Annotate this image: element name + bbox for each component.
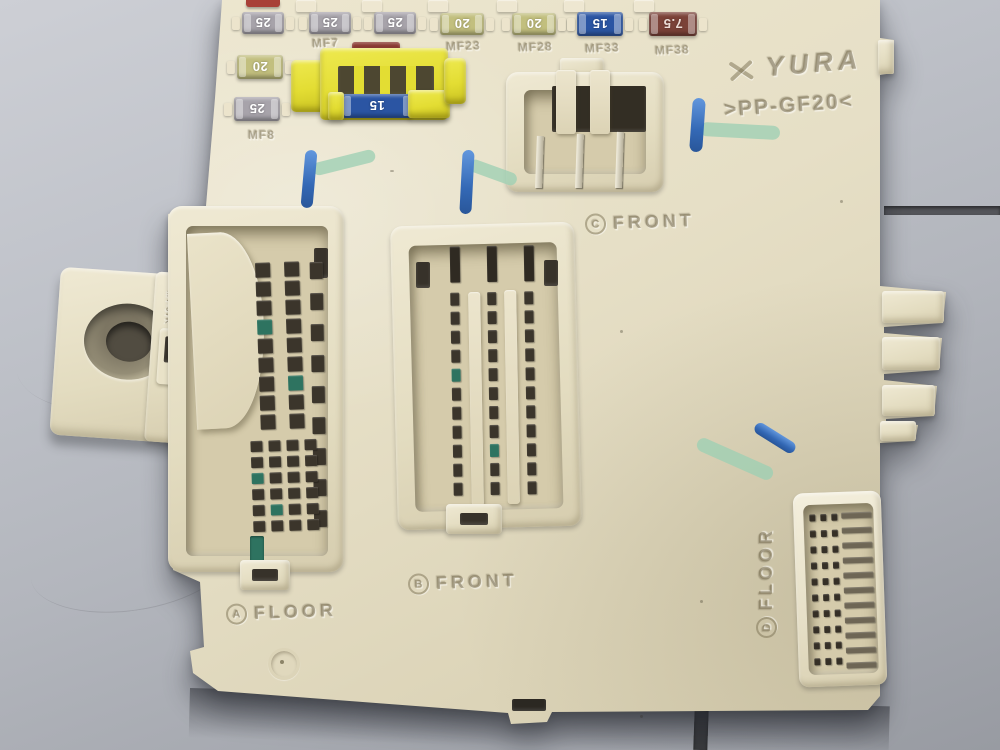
terminal-pin xyxy=(288,487,300,498)
terminal-pin xyxy=(842,542,872,549)
terminal-pin xyxy=(287,471,299,482)
terminal-pin xyxy=(487,246,498,282)
terminal-pin xyxy=(450,293,459,306)
terminal-pin xyxy=(835,610,841,617)
terminal-pin xyxy=(258,357,274,373)
terminal-pin xyxy=(251,473,263,484)
terminal-pin xyxy=(487,292,496,305)
terminal-pin xyxy=(312,417,325,434)
terminal-pin xyxy=(823,594,829,601)
terminal-pin xyxy=(836,657,842,664)
bottom-clip-slot xyxy=(512,699,546,711)
terminal-pin xyxy=(524,245,535,281)
terminal-pin xyxy=(284,261,300,277)
side-tab xyxy=(882,291,944,323)
terminal-pin xyxy=(260,414,276,430)
terminal-pin xyxy=(257,319,273,335)
fuse-socket-nub xyxy=(428,0,448,12)
terminal-pin xyxy=(451,350,460,363)
terminal-pin xyxy=(821,530,827,537)
slot-label-mf38: MF38 xyxy=(655,42,690,57)
terminal-pin xyxy=(813,626,819,633)
terminal-pin xyxy=(525,367,534,380)
terminal-pin xyxy=(285,280,301,296)
fuse-20a: 20 xyxy=(512,13,556,35)
terminal-pin xyxy=(311,355,324,372)
terminal-pin xyxy=(258,338,274,354)
fuse-15a: 15 xyxy=(577,12,623,36)
connector-d-label-text: FLOOR xyxy=(756,527,777,610)
terminal-pin xyxy=(822,578,828,585)
slot-label-mf33: MF33 xyxy=(585,40,620,55)
terminal-pin xyxy=(289,394,305,410)
fuse-value: 20 xyxy=(237,55,283,79)
terminal-pin xyxy=(489,387,498,400)
fuse-socket-nub xyxy=(296,0,316,12)
terminal-pin xyxy=(304,439,316,450)
fuse-body: 20 xyxy=(237,55,283,79)
fuse-15a-in-relay-socket: 15 xyxy=(342,94,412,118)
terminal-pin xyxy=(843,572,873,579)
terminal-pin xyxy=(271,520,283,531)
terminal-pin xyxy=(833,578,839,585)
terminal-pin xyxy=(527,481,536,494)
connector-c-label: C FRONT xyxy=(585,210,696,235)
terminal-pin xyxy=(814,642,820,649)
terminal-pin xyxy=(271,504,283,515)
terminal-pin xyxy=(305,471,317,482)
terminal-pin xyxy=(526,405,535,418)
terminal-pin xyxy=(488,330,497,343)
terminal-pin xyxy=(253,521,265,532)
fuse-value: 20 xyxy=(512,13,556,35)
terminal-pin xyxy=(310,293,323,310)
terminal-pin xyxy=(527,462,536,475)
terminal-pin xyxy=(253,505,265,516)
relay-socket-frame-left xyxy=(328,92,344,120)
terminal-pin xyxy=(842,527,872,534)
circled-letter-d: D xyxy=(756,617,777,638)
fuse-value: 7.5 xyxy=(649,12,697,36)
surface-speck xyxy=(840,200,843,203)
terminal-pin xyxy=(834,594,840,601)
terminal-pin xyxy=(286,318,302,334)
terminal-pin xyxy=(306,487,318,498)
connector-d-fin-slots xyxy=(841,511,879,677)
terminal-pin xyxy=(453,464,462,477)
terminal-pin xyxy=(268,440,280,451)
terminal-pin xyxy=(305,455,317,466)
fuse-socket-nub xyxy=(362,0,382,12)
terminal-pin xyxy=(310,262,323,279)
terminal-pin xyxy=(822,562,828,569)
terminal-pin xyxy=(810,530,816,537)
fuse-25a: 25 xyxy=(242,12,284,34)
connector-a-label-text: FLOOR xyxy=(254,600,338,624)
surface-speck xyxy=(390,170,394,172)
connector-a-terminal-grid-lower xyxy=(250,439,319,537)
terminal-pin xyxy=(813,610,819,617)
side-tab xyxy=(878,40,894,74)
terminal-pin xyxy=(845,631,875,638)
fuse-body: 15 xyxy=(342,94,412,118)
photo-fusebox-on-tile-floor: MT-97K LHD 25 25 25 20 20 15 7.5 20 25 M… xyxy=(0,0,1000,750)
terminal-pin xyxy=(811,578,817,585)
fuse-25a: 25 xyxy=(309,12,351,34)
terminal-pin xyxy=(809,514,815,521)
terminal-pin xyxy=(846,646,876,653)
terminal-pin xyxy=(524,310,533,323)
connector-b-blade-slots xyxy=(450,245,531,282)
fuse-value: 25 xyxy=(309,12,351,34)
fuse-value: 25 xyxy=(234,97,280,121)
connector-c-rib xyxy=(556,70,576,134)
fuse-body: 25 xyxy=(242,12,284,34)
fuse-value: 15 xyxy=(342,94,412,118)
terminal-pin xyxy=(287,455,299,466)
fuse-socket-nub xyxy=(634,0,654,12)
terminal-pin xyxy=(831,514,837,521)
circled-letter-b: B xyxy=(408,573,430,595)
terminal-pin xyxy=(490,482,499,495)
terminal-pin xyxy=(452,369,461,382)
terminal-pin xyxy=(259,376,275,392)
terminal-pin xyxy=(824,626,830,633)
fuse-body: 20 xyxy=(440,13,484,35)
terminal-pin xyxy=(487,311,496,324)
terminal-pin xyxy=(452,426,461,439)
connector-b-corner-hole xyxy=(544,260,558,286)
terminal-pin xyxy=(526,424,535,437)
terminal-pin xyxy=(311,324,324,341)
connector-b-terminal-grid xyxy=(450,291,537,502)
terminal-pin xyxy=(524,291,533,304)
relay-slot-divider xyxy=(380,66,390,96)
fuse-25a: 25 xyxy=(234,97,280,121)
yura-logo-icon xyxy=(725,57,757,84)
terminal-pin xyxy=(307,519,319,530)
terminal-pin xyxy=(526,386,535,399)
fuse-socket-nub xyxy=(497,0,517,12)
fuse-value: 25 xyxy=(374,12,416,34)
relay-socket-right-arm xyxy=(444,58,466,104)
side-tab xyxy=(880,421,916,441)
terminal-pin xyxy=(489,425,498,438)
fuse-body: 20 xyxy=(512,13,556,35)
connector-b-label-text: FRONT xyxy=(436,570,519,594)
connector-d-label: D FLOOR xyxy=(756,508,777,638)
slot-label-mf23: MF23 xyxy=(446,38,481,53)
terminal-pin xyxy=(307,503,319,514)
terminal-pin xyxy=(825,642,831,649)
terminal-pin xyxy=(844,587,874,594)
fuse-body: 7.5 xyxy=(649,12,697,36)
terminal-pin xyxy=(811,562,817,569)
terminal-pin xyxy=(825,658,831,665)
terminal-pin xyxy=(832,546,838,553)
terminal-pin xyxy=(286,440,298,451)
terminal-pin xyxy=(490,463,499,476)
terminal-pin xyxy=(835,625,841,632)
fuse-value: 15 xyxy=(577,12,623,36)
terminal-pin xyxy=(489,406,498,419)
terminal-pin xyxy=(250,441,262,452)
terminal-pin xyxy=(452,407,461,420)
connector-b-label: B FRONT xyxy=(408,570,519,595)
terminal-pin xyxy=(451,331,460,344)
terminal-pin xyxy=(289,503,301,514)
connector-b-latch-slot xyxy=(460,513,488,525)
fuse-body: 15 xyxy=(577,12,623,36)
terminal-pin xyxy=(525,329,534,342)
terminal-pin xyxy=(312,386,325,403)
connector-d-pin-grid xyxy=(809,514,843,675)
terminal-pin xyxy=(256,281,272,297)
fuse-20a: 20 xyxy=(440,13,484,35)
terminal-pin xyxy=(453,445,462,458)
terminal-pin xyxy=(450,247,461,283)
circled-letter-c: C xyxy=(585,213,607,235)
terminal-pin xyxy=(525,348,534,361)
terminal-pin xyxy=(846,661,876,668)
terminal-pin xyxy=(824,610,830,617)
relay-slot-divider xyxy=(354,66,364,96)
terminal-pin xyxy=(810,546,816,553)
terminal-pin xyxy=(287,356,303,372)
fuse-20a: 20 xyxy=(237,55,283,79)
slot-label-mf8: MF8 xyxy=(248,128,275,142)
terminal-pin xyxy=(270,488,282,499)
terminal-pin xyxy=(452,388,461,401)
fuse-value: 20 xyxy=(440,13,484,35)
partial-fuse xyxy=(246,0,280,7)
terminal-pin xyxy=(841,512,871,519)
connector-c-rib xyxy=(590,70,610,134)
fuse-socket-nub xyxy=(564,0,584,12)
terminal-pin xyxy=(844,602,874,609)
terminal-pin xyxy=(845,616,875,623)
surface-speck xyxy=(620,330,623,333)
terminal-pin xyxy=(820,514,826,521)
terminal-pin xyxy=(288,375,304,391)
terminal-pin xyxy=(269,456,281,467)
connector-b-corner-hole xyxy=(416,262,430,288)
boss-center-dot xyxy=(280,660,284,664)
terminal-pin xyxy=(269,472,281,483)
fuse-body: 25 xyxy=(234,97,280,121)
terminal-pin xyxy=(488,349,497,362)
terminal-pin xyxy=(453,483,462,496)
surface-speck xyxy=(700,600,703,603)
connector-c-label-text: FRONT xyxy=(613,210,696,234)
terminal-pin xyxy=(251,457,263,468)
terminal-pin xyxy=(490,444,499,457)
fuse-body: 25 xyxy=(374,12,416,34)
terminal-pin xyxy=(843,557,873,564)
terminal-pin xyxy=(836,641,842,648)
connector-a-latch xyxy=(240,560,290,590)
connector-b-latch xyxy=(446,504,502,534)
slot-label-mf28: MF28 xyxy=(518,39,553,54)
connector-a-latch-slot xyxy=(252,569,278,581)
terminal-pin xyxy=(451,312,460,325)
terminal-pin xyxy=(287,337,303,353)
terminal-pin xyxy=(821,546,827,553)
terminal-pin xyxy=(289,413,305,429)
terminal-pin xyxy=(527,443,536,456)
terminal-pin xyxy=(814,658,820,665)
fuse-body: 25 xyxy=(309,12,351,34)
terminal-pin xyxy=(833,562,839,569)
terminal-pin xyxy=(289,519,301,530)
terminal-pin xyxy=(285,299,301,315)
terminal-pin xyxy=(256,300,272,316)
bracket-hole xyxy=(105,320,154,363)
fuse-value: 25 xyxy=(242,12,284,34)
circled-letter-a: A xyxy=(226,603,248,625)
connector-a-terminal-grid-upper xyxy=(255,261,307,437)
fuse-25a: 25 xyxy=(374,12,416,34)
terminal-pin xyxy=(832,530,838,537)
terminal-pin xyxy=(260,395,276,411)
terminal-pin xyxy=(252,489,264,500)
fuse-7-5a: 7.5 xyxy=(649,12,697,36)
molded-boss xyxy=(268,648,300,680)
connector-a-label: A FLOOR xyxy=(226,600,338,625)
terminal-pin xyxy=(812,594,818,601)
side-tab xyxy=(882,385,935,416)
side-tab xyxy=(882,337,940,370)
terminal-pin xyxy=(255,262,271,278)
terminal-pin xyxy=(488,368,497,381)
